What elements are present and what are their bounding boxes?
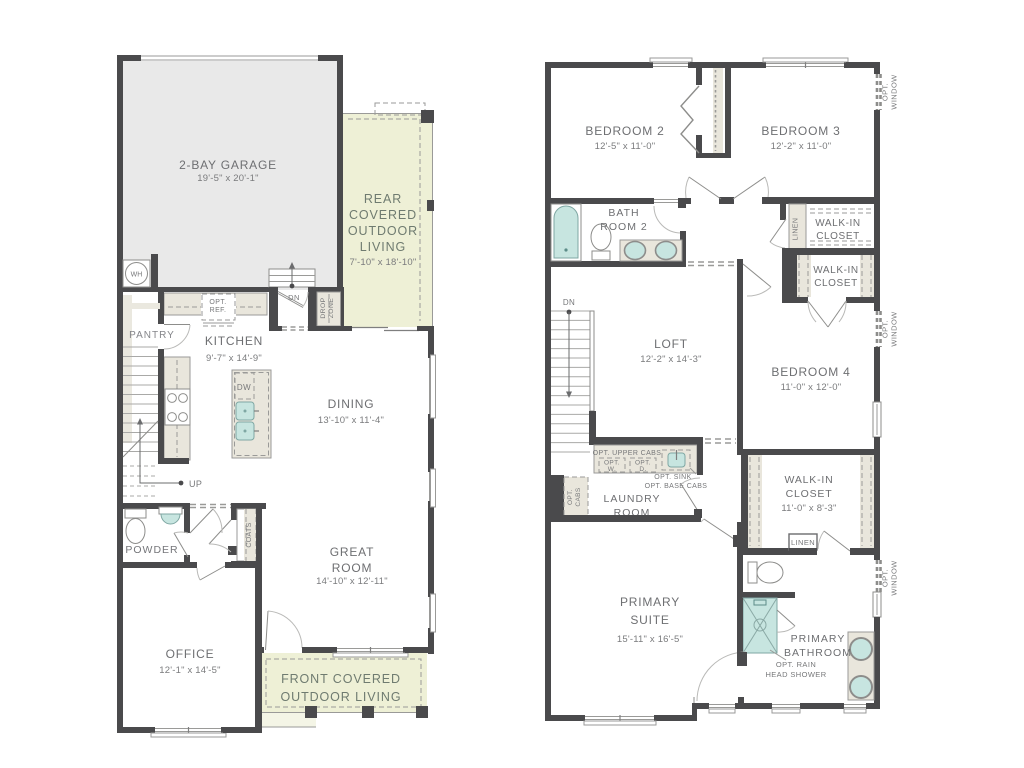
svg-text:BATHROOM: BATHROOM — [784, 647, 852, 659]
svg-text:SUITE: SUITE — [630, 613, 669, 627]
svg-text:12'-1" x 14'-5": 12'-1" x 14'-5" — [159, 665, 220, 676]
svg-text:HEAD SHOWER: HEAD SHOWER — [765, 670, 826, 679]
svg-text:LAUNDRY: LAUNDRY — [604, 493, 661, 505]
svg-text:FRONT COVERED: FRONT COVERED — [281, 672, 401, 686]
svg-text:OPT.: OPT. — [881, 320, 890, 338]
svg-text:12'-2" x 11'-0": 12'-2" x 11'-0" — [771, 141, 832, 152]
svg-text:OPT. BASE CABS: OPT. BASE CABS — [645, 483, 708, 490]
svg-text:WH: WH — [131, 272, 143, 279]
svg-text:ROOM 2: ROOM 2 — [600, 221, 647, 233]
svg-text:OUTDOOR LIVING: OUTDOOR LIVING — [281, 690, 402, 704]
svg-text:9'-7" x 14'-9": 9'-7" x 14'-9" — [206, 353, 262, 364]
svg-text:11'-0" x 12'-0": 11'-0" x 12'-0" — [781, 382, 842, 393]
svg-text:LIVING: LIVING — [360, 240, 406, 254]
svg-text:WINDOW: WINDOW — [890, 560, 899, 596]
svg-text:W.: W. — [608, 466, 616, 473]
svg-text:WALK-IN: WALK-IN — [785, 474, 834, 486]
svg-text:COATS: COATS — [246, 522, 253, 547]
svg-text:LINEN: LINEN — [791, 538, 815, 547]
svg-text:OFFICE: OFFICE — [166, 647, 215, 661]
svg-text:GREAT: GREAT — [330, 545, 374, 559]
svg-text:12'-5" x 11'-0": 12'-5" x 11'-0" — [595, 141, 656, 152]
svg-text:15'-11" x 16'-5": 15'-11" x 16'-5" — [617, 634, 683, 645]
svg-text:WINDOW: WINDOW — [890, 311, 899, 347]
svg-text:12'-2" x 14'-3": 12'-2" x 14'-3" — [640, 354, 701, 365]
svg-text:WALK-IN: WALK-IN — [815, 218, 861, 229]
svg-text:2-BAY GARAGE: 2-BAY GARAGE — [179, 158, 277, 172]
svg-text:14'-10" x 12'-11": 14'-10" x 12'-11" — [316, 576, 388, 587]
svg-text:DW: DW — [237, 383, 251, 392]
svg-text:OPT.: OPT. — [881, 569, 890, 587]
svg-text:WINDOW: WINDOW — [890, 74, 899, 110]
svg-text:DINING: DINING — [328, 397, 375, 411]
svg-text:OPT.: OPT. — [881, 83, 890, 101]
svg-text:OPT.: OPT. — [567, 489, 574, 505]
svg-text:BATH: BATH — [608, 207, 639, 219]
svg-text:CLOSET: CLOSET — [814, 278, 858, 289]
svg-text:LOFT: LOFT — [654, 337, 688, 351]
svg-text:ZONE: ZONE — [328, 298, 335, 319]
svg-text:OPT.: OPT. — [209, 299, 226, 306]
svg-text:DN: DN — [288, 293, 300, 302]
svg-text:PRIMARY: PRIMARY — [791, 633, 846, 645]
svg-text:KITCHEN: KITCHEN — [205, 334, 263, 348]
svg-text:CLOSET: CLOSET — [786, 488, 833, 500]
svg-text:19'-5" x 20'-1": 19'-5" x 20'-1" — [197, 173, 258, 184]
svg-text:DN: DN — [563, 298, 575, 307]
svg-text:PANTRY: PANTRY — [129, 330, 175, 341]
svg-text:BEDROOM 4: BEDROOM 4 — [771, 365, 850, 379]
svg-text:COVERED: COVERED — [349, 208, 417, 222]
svg-text:REF.: REF. — [210, 307, 227, 314]
svg-text:BEDROOM 2: BEDROOM 2 — [585, 124, 664, 138]
svg-text:CABS: CABS — [575, 487, 582, 507]
svg-text:OUTDOOR: OUTDOOR — [348, 224, 418, 238]
svg-text:CLOSET: CLOSET — [816, 231, 860, 242]
svg-text:REAR: REAR — [364, 192, 402, 206]
svg-text:WALK-IN: WALK-IN — [813, 265, 859, 276]
svg-text:OPT. SINK: OPT. SINK — [654, 474, 691, 481]
svg-text:11'-0" x 8'-3": 11'-0" x 8'-3" — [781, 503, 836, 514]
svg-text:LINEN: LINEN — [793, 218, 800, 241]
svg-text:ROOM: ROOM — [332, 561, 373, 575]
svg-text:POWDER: POWDER — [125, 544, 178, 556]
svg-text:OPT. RAIN: OPT. RAIN — [776, 660, 816, 669]
svg-text:7'-10" x 18'-10": 7'-10" x 18'-10" — [350, 257, 417, 268]
svg-text:BEDROOM 3: BEDROOM 3 — [761, 124, 840, 138]
svg-text:OPT. UPPER CABS: OPT. UPPER CABS — [593, 450, 662, 457]
svg-text:DROP: DROP — [320, 297, 327, 318]
svg-text:UP: UP — [189, 479, 202, 489]
svg-text:D.: D. — [639, 466, 646, 473]
svg-text:13'-10" x 11'-4": 13'-10" x 11'-4" — [318, 415, 384, 426]
svg-text:PRIMARY: PRIMARY — [620, 595, 680, 609]
